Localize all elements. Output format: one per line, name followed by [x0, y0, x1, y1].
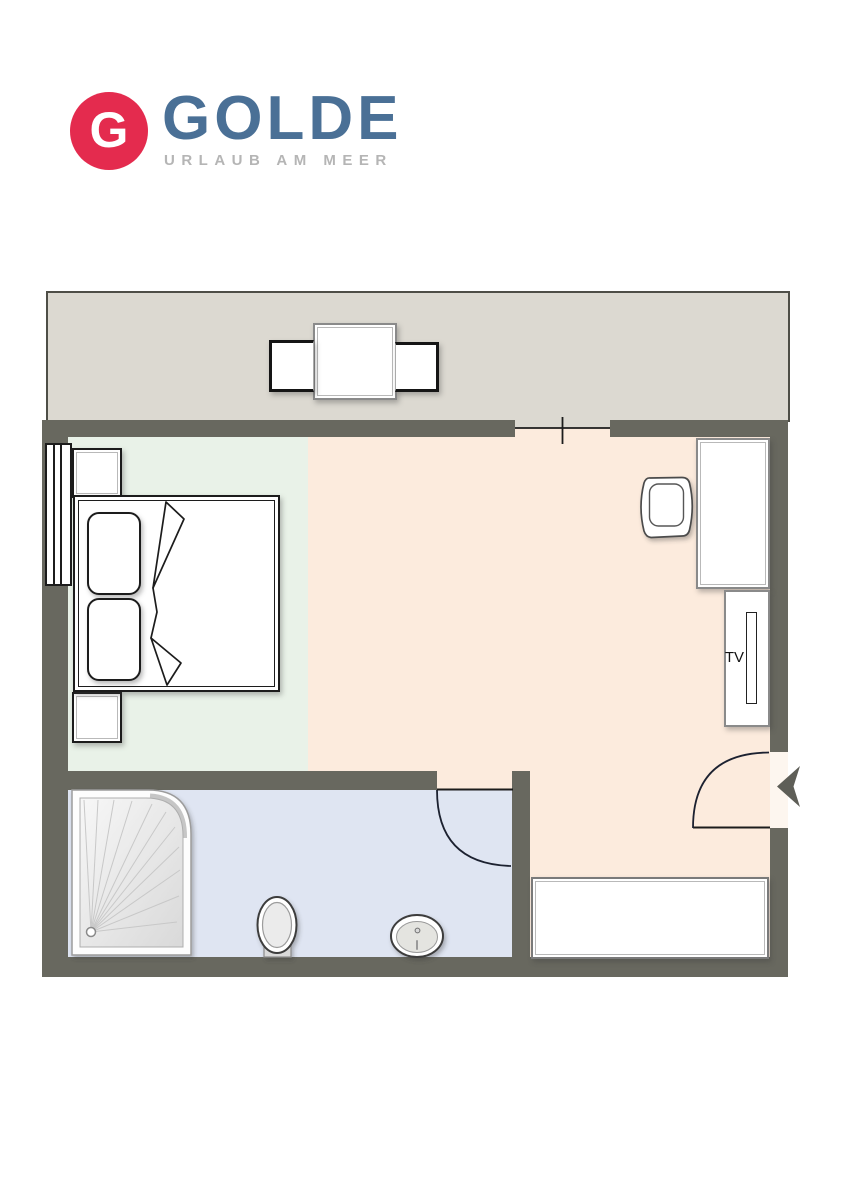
desk: [696, 438, 770, 589]
nightstand-bottom: [72, 692, 122, 743]
tv-label: TV: [714, 649, 744, 666]
balcony-chair-right: [395, 342, 439, 392]
tv-screen: [746, 612, 757, 704]
brand-tagline: URLAUB AM MEER: [164, 152, 444, 169]
wardrobe: [531, 877, 769, 959]
logo-mark: G: [70, 92, 148, 170]
nightstand-top: [72, 448, 122, 498]
logo-monogram: G: [90, 105, 129, 155]
entry-door-opening: [770, 752, 788, 828]
wall-bottom: [42, 957, 788, 977]
balcony-door-opening: [515, 420, 610, 437]
bathroom-floor: [68, 790, 512, 957]
bathroom-door-opening: [437, 771, 512, 790]
wall-balcony-right: [610, 420, 788, 437]
balcony-table: [313, 323, 397, 400]
table-top-inner-edge: [317, 327, 393, 396]
pillow: [87, 598, 141, 681]
wardrobe-inner-edge: [535, 881, 765, 955]
wall-bathroom-right: [512, 771, 530, 957]
window-pane-line: [53, 445, 55, 584]
nightstand-inner-edge: [76, 696, 118, 739]
brand-name: GOLDE: [162, 90, 442, 147]
wall-right-lower: [770, 828, 788, 977]
floorplan-page: G GOLDE URLAUB AM MEER TV: [0, 0, 848, 1200]
pillow: [87, 512, 141, 595]
wall-bathroom-top: [68, 771, 437, 790]
window-icon: [45, 443, 72, 586]
desk-inner-edge: [700, 442, 766, 585]
window-pane-line: [60, 445, 62, 584]
wall-balcony-left: [42, 420, 515, 437]
balcony-chair-left: [269, 340, 314, 392]
nightstand-inner-edge: [76, 452, 118, 494]
wall-right-upper: [770, 420, 788, 752]
